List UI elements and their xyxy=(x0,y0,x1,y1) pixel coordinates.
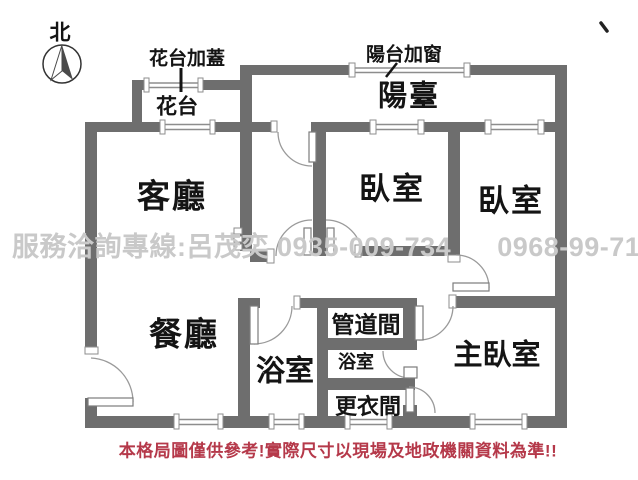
room-label-dressing: 更衣間 xyxy=(335,396,401,418)
wall-bottom-a xyxy=(85,416,177,428)
wall-pipe-right xyxy=(403,300,415,338)
room-label-master: 主臥室 xyxy=(453,342,540,371)
window-bottom-bath xyxy=(272,420,302,425)
disclaimer-text: 本格局圖僅供參考!實際尺寸以現場及地政機關資料為準!! xyxy=(119,437,557,462)
door-bath-main xyxy=(250,306,258,344)
room-label-flower-bed: 花台 xyxy=(156,97,198,118)
wall-pipe-bottom xyxy=(328,338,417,350)
window-bottom-master xyxy=(473,420,525,425)
door-bedroom2 xyxy=(453,283,489,291)
door-entrance xyxy=(88,398,133,406)
window-flower-top xyxy=(147,83,200,88)
room-label-bedroom-a: 臥室 xyxy=(359,174,425,205)
window-bottom-dining xyxy=(177,420,221,425)
compass-north-label: 北 xyxy=(50,23,71,44)
compass xyxy=(43,45,81,83)
label-flower-cover: 花台加蓋 xyxy=(149,50,225,69)
door-master xyxy=(415,306,423,340)
arc-entrance-door xyxy=(91,358,133,402)
wall-living-top-a xyxy=(85,122,163,132)
wall-bath-left xyxy=(238,298,250,418)
room-label-balcony: 陽臺 xyxy=(378,83,440,112)
room-label-bathroom-small: 浴室 xyxy=(338,353,374,371)
window-bottom-dressing xyxy=(348,420,390,425)
room-label-bathroom-main: 浴室 xyxy=(256,358,314,387)
window-bedroom2-balcony xyxy=(488,125,541,130)
room-label-living: 客廳 xyxy=(137,180,207,213)
window-living-top xyxy=(163,125,213,130)
wall-master-top xyxy=(450,296,567,308)
wall-bed-top-d xyxy=(541,122,567,132)
wall-flower-top-b xyxy=(200,80,243,90)
window-balcony-top xyxy=(352,68,468,73)
wall-smallbath-bottom xyxy=(328,378,415,390)
room-label-pipe-duct: 管道間 xyxy=(332,314,401,337)
room-label-dining: 餐廳 xyxy=(149,318,219,351)
wall-bath-right xyxy=(317,300,328,416)
arc-balcony-door xyxy=(278,132,312,166)
wall-balcony-top-b xyxy=(468,65,567,75)
window-bedroom1-balcony xyxy=(373,125,421,130)
floor-plan-page: 北 花台加蓋 花台 陽台加窗 陽臺 客廳 臥室 臥室 餐廳 浴室 管道間 浴室 … xyxy=(0,0,638,480)
watermark-service-line: 服務洽詢專線:呂茂奕 xyxy=(12,232,269,262)
wall-bottom-b xyxy=(221,416,272,428)
watermark: 服務洽詢專線:呂茂奕 0935-009-734 0968-99-71-75 xyxy=(12,225,638,264)
watermark-phone2: 0968-99-71-75 xyxy=(497,232,638,262)
wall-living-right xyxy=(240,65,252,251)
arc-master-door xyxy=(419,306,453,340)
arc-bath-main-door xyxy=(254,306,292,344)
wall-balcony-top-a xyxy=(240,65,352,75)
door-balcony xyxy=(309,132,316,162)
room-label-bedroom-b: 臥室 xyxy=(478,186,544,217)
door-bath-small xyxy=(404,367,417,378)
wall-bottom-d xyxy=(390,416,473,428)
wall-bed-top-c xyxy=(421,122,488,132)
label-balcony-window: 陽台加窗 xyxy=(366,46,442,65)
door-dressing xyxy=(406,388,414,412)
wall-bottom-e xyxy=(525,416,567,428)
watermark-phone1: 0935-009-734 xyxy=(277,232,451,262)
stray-mark xyxy=(601,23,607,31)
